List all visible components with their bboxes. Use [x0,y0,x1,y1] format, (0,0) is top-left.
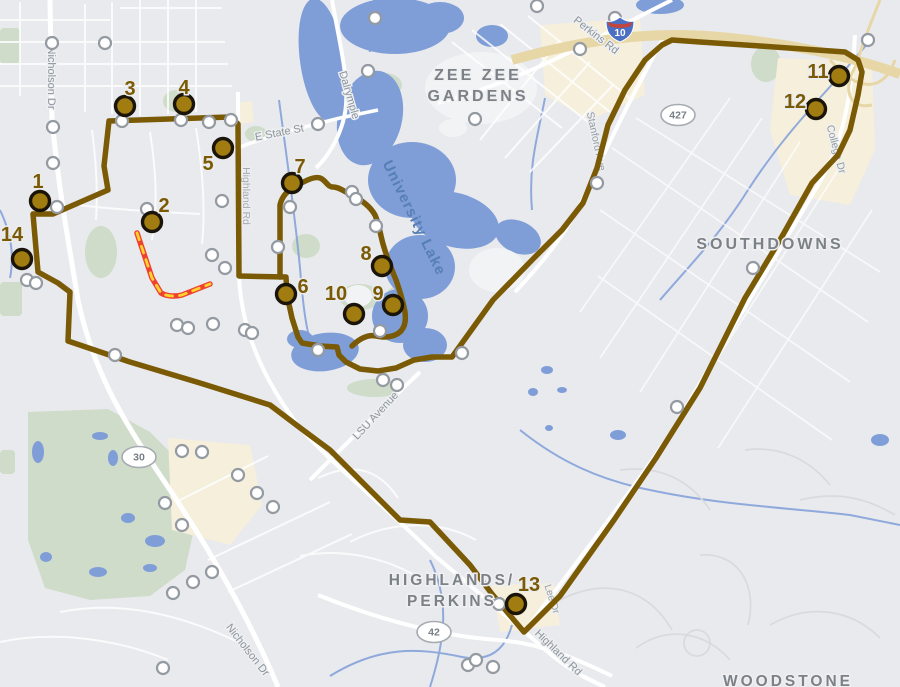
route-stop-number-12: 12 [784,91,806,113]
neighborhood-label: HIGHLANDS/ [389,572,515,589]
minor-stop[interactable] [175,114,187,126]
route-shield-number: 42 [428,627,440,639]
minor-stop[interactable] [47,157,59,169]
route-stop-number-7: 7 [294,156,305,178]
route-stop-14[interactable] [13,250,32,269]
route-stop-number-2: 2 [158,195,169,217]
minor-stop[interactable] [157,662,169,674]
route-stop-6[interactable] [277,285,296,304]
minor-stop[interactable] [312,344,324,356]
minor-stop[interactable] [374,325,386,337]
neighborhood-label: ZEE ZEE [434,67,522,84]
route-stop-number-3: 3 [124,78,135,100]
minor-stop[interactable] [747,262,759,274]
minor-stop[interactable] [196,446,208,458]
street-label: Highland Rd [240,167,252,225]
route-shield-number: 427 [669,110,687,122]
route-stop-number-11: 11 [807,61,828,83]
minor-stop[interactable] [206,566,218,578]
minor-stop[interactable] [176,445,188,457]
minor-stop[interactable] [377,374,389,386]
route-shield-number: 30 [133,452,145,464]
minor-stop[interactable] [470,654,482,666]
minor-stop[interactable] [159,497,171,509]
route-stop-9[interactable] [384,296,403,315]
street-label: Nicholson Dr [45,47,57,110]
minor-stop[interactable] [99,37,111,49]
minor-stop[interactable] [219,262,231,274]
minor-stop[interactable] [272,241,284,253]
minor-stop[interactable] [176,519,188,531]
route-stop-number-1: 1 [32,171,43,193]
minor-stop[interactable] [370,220,382,232]
route-stop-10[interactable] [345,305,364,324]
minor-stop[interactable] [267,501,279,513]
route-stop-1[interactable] [31,192,50,211]
route-stop-12[interactable] [807,100,826,119]
neighborhood-label: PERKINS [407,593,497,610]
minor-stop[interactable] [30,277,42,289]
neighborhood-label: GARDENS [427,88,528,105]
map-viewport[interactable]: Nicholson DrNicholson DrDalrympleE State… [0,0,900,687]
route-stop-number-10: 10 [325,283,347,305]
minor-stop[interactable] [487,661,499,673]
minor-stop[interactable] [167,587,179,599]
route-stop-11[interactable] [830,67,849,86]
minor-stop[interactable] [109,349,121,361]
minor-stop[interactable] [350,193,362,205]
minor-stop[interactable] [284,201,296,213]
minor-stop[interactable] [469,113,481,125]
minor-stop[interactable] [207,318,219,330]
minor-stop[interactable] [862,34,874,46]
minor-stop[interactable] [246,327,258,339]
route-stop-number-9: 9 [372,283,383,305]
minor-stop[interactable] [362,65,374,77]
neighborhood-label: SOUTHDOWNS [696,236,843,253]
map-canvas[interactable]: Nicholson DrNicholson DrDalrympleE State… [0,0,900,687]
minor-stop[interactable] [671,401,683,413]
minor-stop[interactable] [391,379,403,391]
minor-stop[interactable] [574,43,586,55]
minor-stop[interactable] [203,116,215,128]
route-stop-number-4: 4 [178,77,190,99]
minor-stop[interactable] [216,195,228,207]
minor-stop[interactable] [51,201,63,213]
minor-stop[interactable] [456,347,468,359]
route-stop-number-8: 8 [360,243,371,265]
minor-stop[interactable] [225,114,237,126]
minor-stop[interactable] [182,322,194,334]
minor-stop[interactable] [251,487,263,499]
minor-stop[interactable] [369,12,381,24]
minor-stop[interactable] [232,469,244,481]
minor-stop[interactable] [46,37,58,49]
minor-stop[interactable] [531,0,543,12]
minor-stop[interactable] [47,121,59,133]
interstate-shield-number: 10 [614,28,626,39]
neighborhood-label: WOODSTONE [723,673,853,687]
route-stop-number-6: 6 [297,276,308,298]
route-stop-5[interactable] [214,139,233,158]
route-stop-13[interactable] [507,595,526,614]
route-stop-number-5: 5 [202,153,213,175]
minor-stop[interactable] [312,118,324,130]
minor-stop[interactable] [591,177,603,189]
route-stop-number-13: 13 [518,574,540,596]
minor-stop[interactable] [187,576,199,588]
route-stop-number-14: 14 [1,224,24,246]
minor-stop[interactable] [206,249,218,261]
route-stop-8[interactable] [373,257,392,276]
